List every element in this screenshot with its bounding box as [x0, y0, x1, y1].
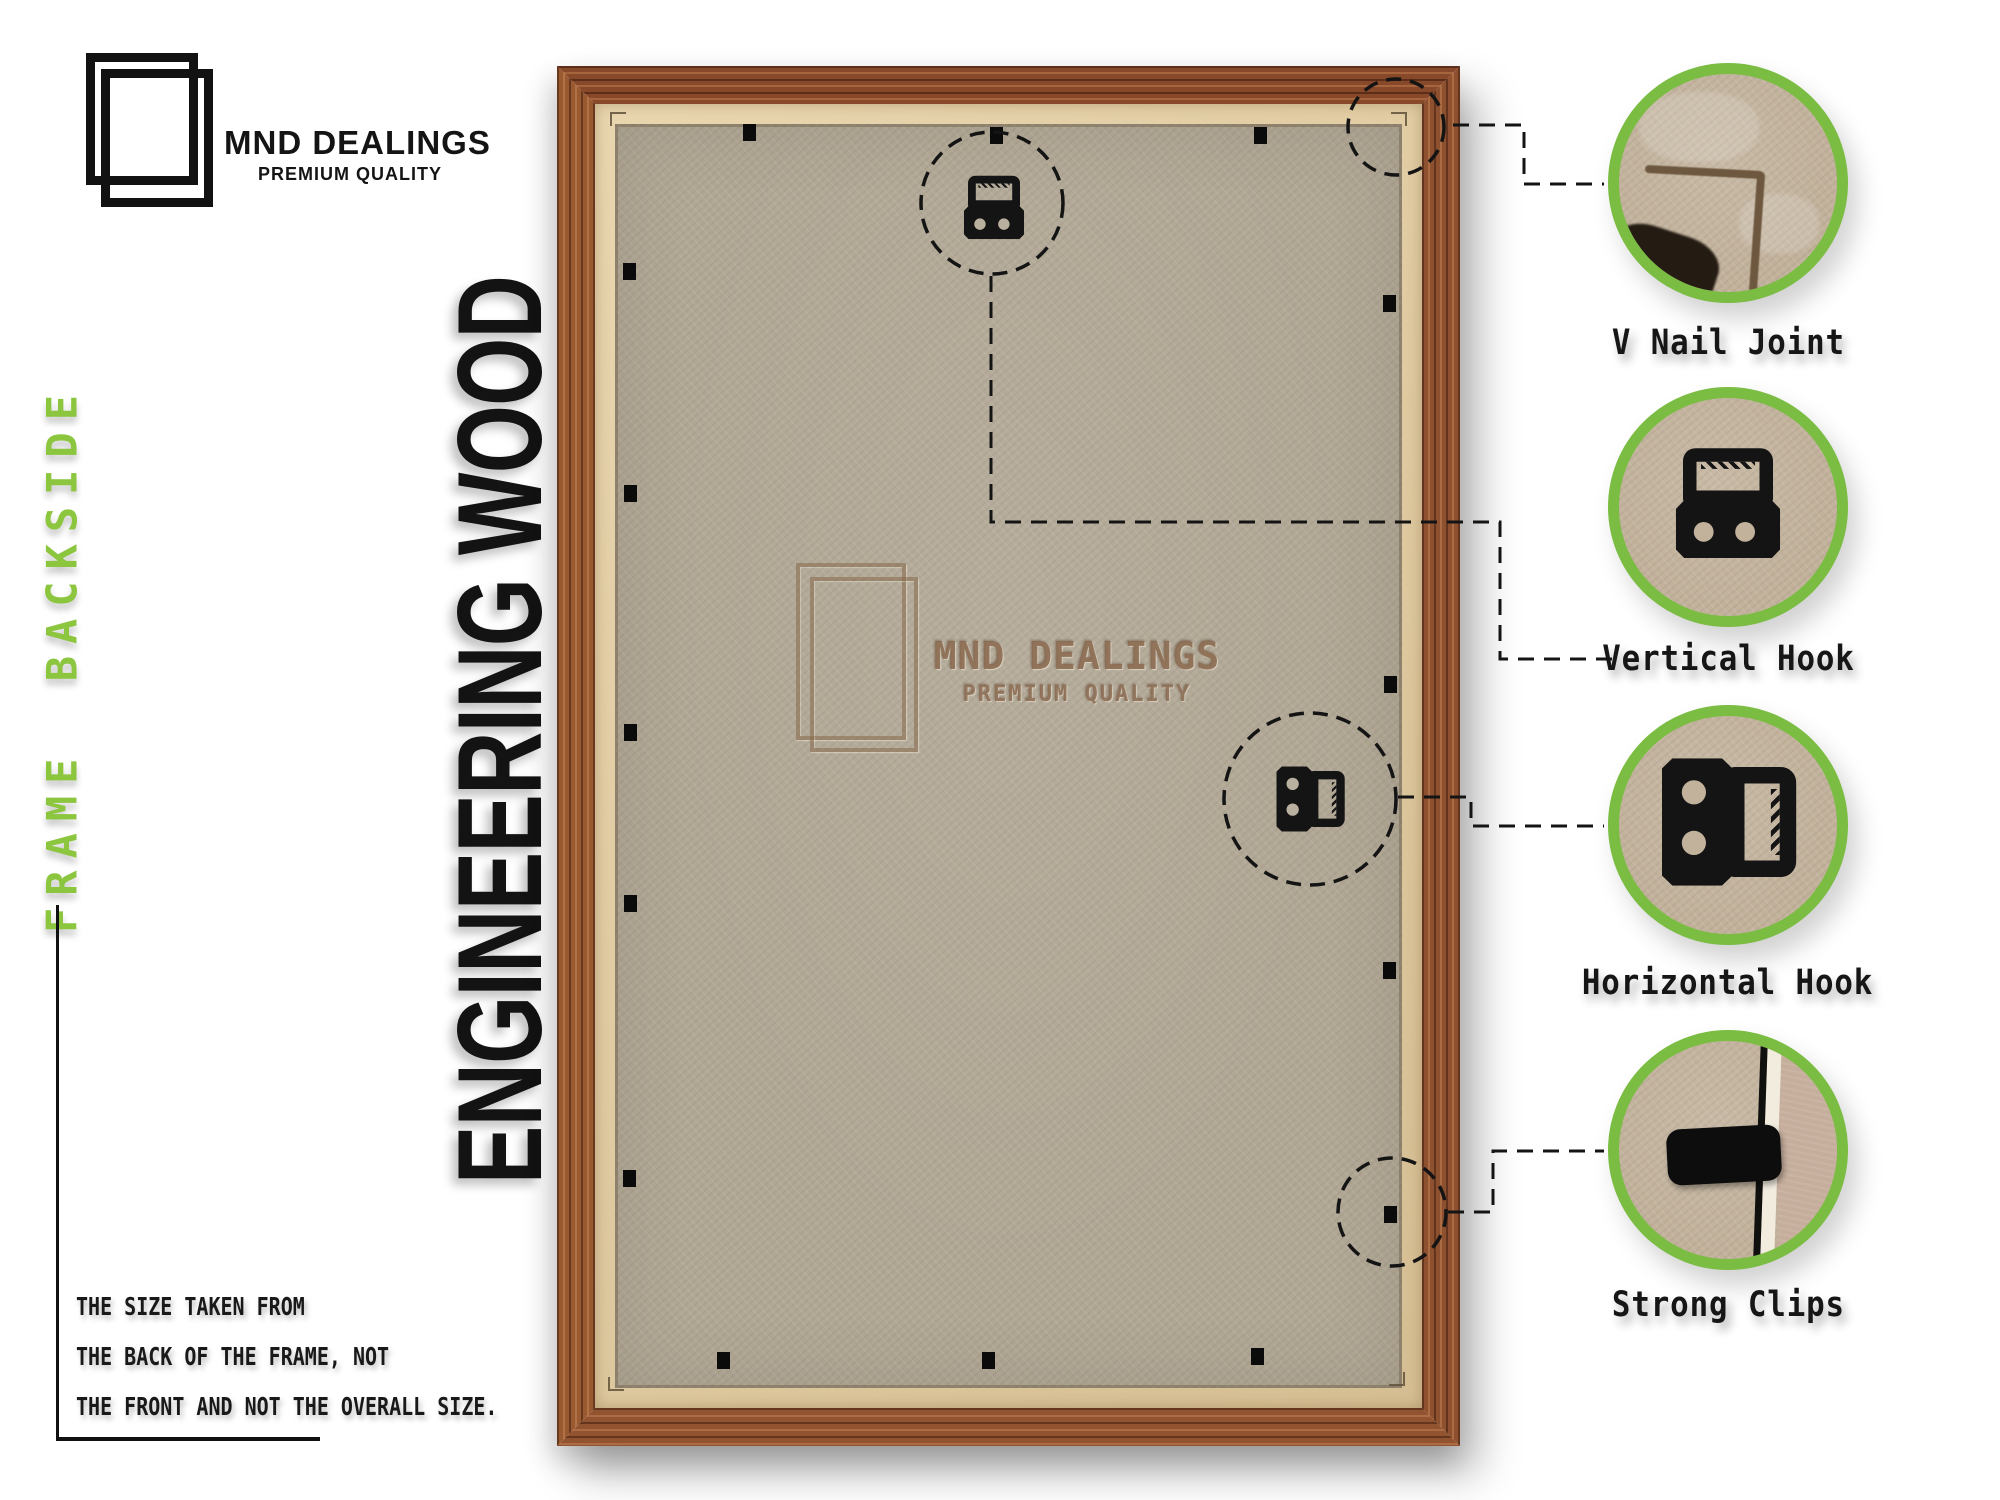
connector-vertical-hook	[991, 276, 1612, 659]
poster-canvas: MND DEALINGS PREMIUM QUALITY FRAME BACKS…	[0, 0, 2000, 1500]
dashed-circle-horizontal-hook	[1224, 713, 1396, 885]
dashed-circle-vertical-hook	[921, 132, 1063, 274]
connector-strong-clips	[1448, 1151, 1604, 1212]
dashed-circle-corner-joint	[1348, 79, 1444, 175]
connector-horizontal-hook	[1398, 797, 1604, 826]
dashed-circle-strong-clip	[1338, 1158, 1446, 1266]
connector-v-nail-joint	[1453, 125, 1604, 184]
annotation-overlay	[0, 0, 2000, 1500]
